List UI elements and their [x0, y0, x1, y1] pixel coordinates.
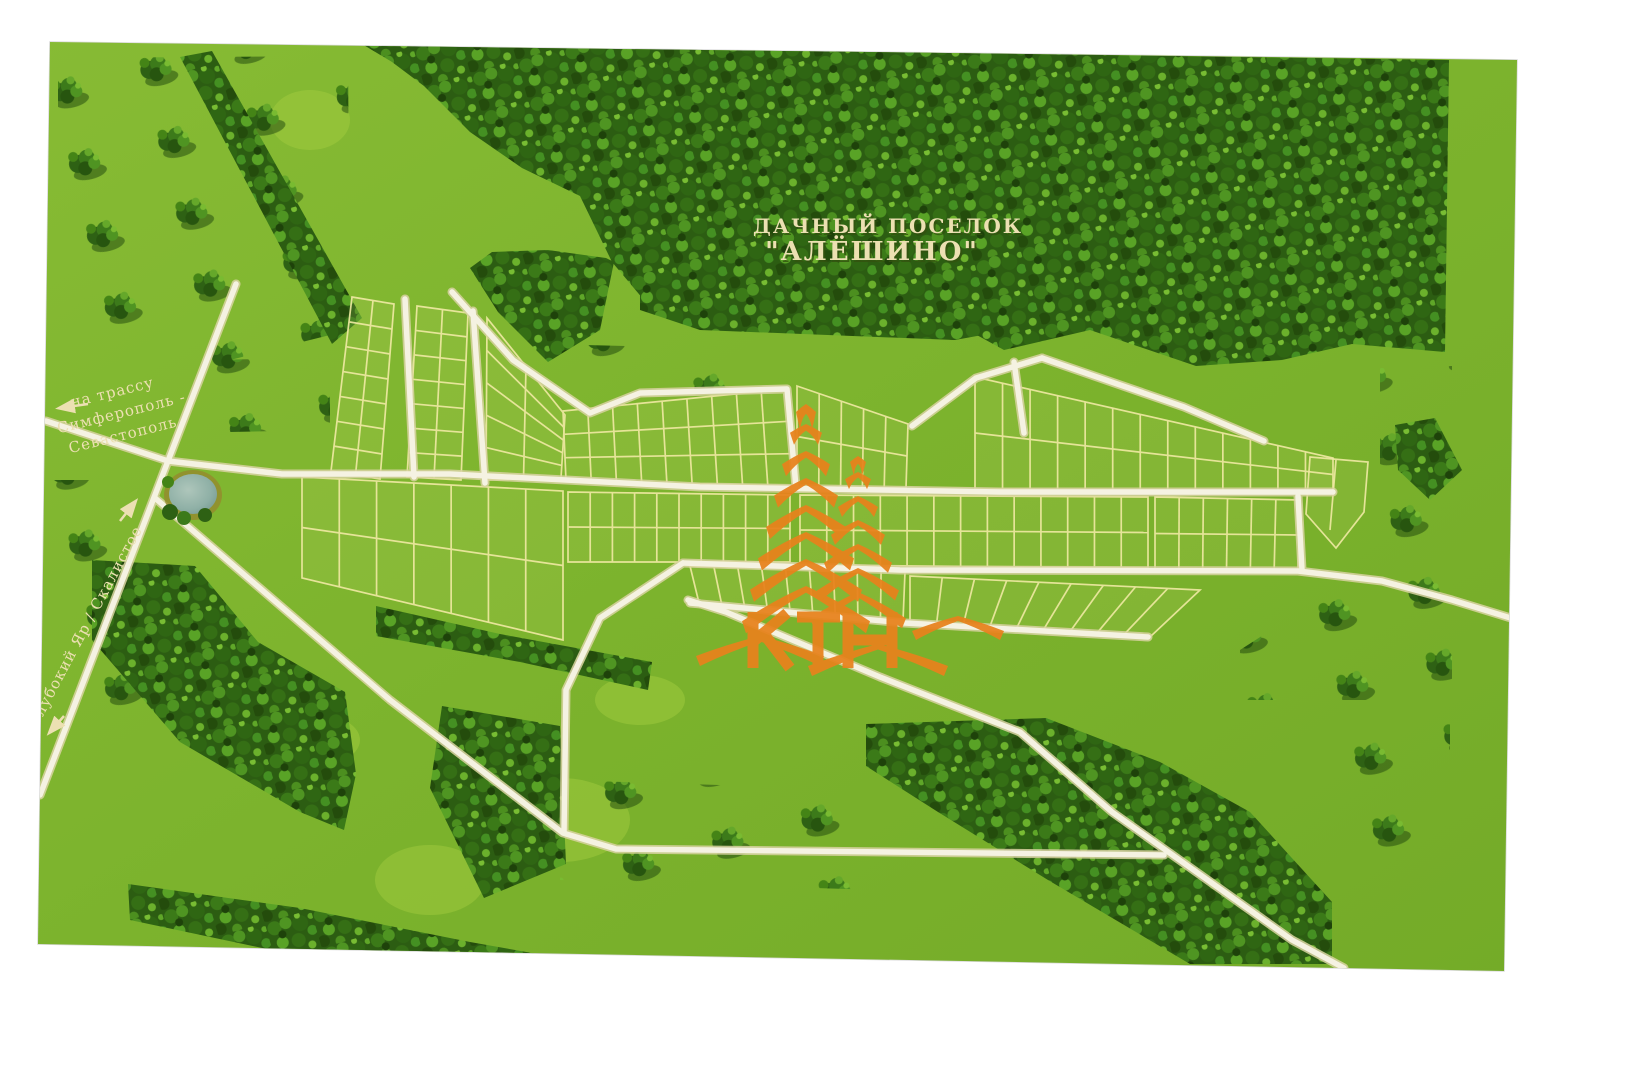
site-plan-map: ДАЧНЫЙ ПОСЕЛОК ДАЧНЫЙ ПОСЕЛОК "АЛЁШИНО" …: [0, 0, 1649, 1080]
map-title-line1: ДАЧНЫЙ ПОСЕЛОК: [753, 212, 1023, 238]
site-plan-page: ДАЧНЫЙ ПОСЕЛОК ДАЧНЫЙ ПОСЕЛОК "АЛЁШИНО" …: [0, 0, 1649, 1080]
map-title-line2: "АЛЁШИНО": [765, 235, 979, 267]
